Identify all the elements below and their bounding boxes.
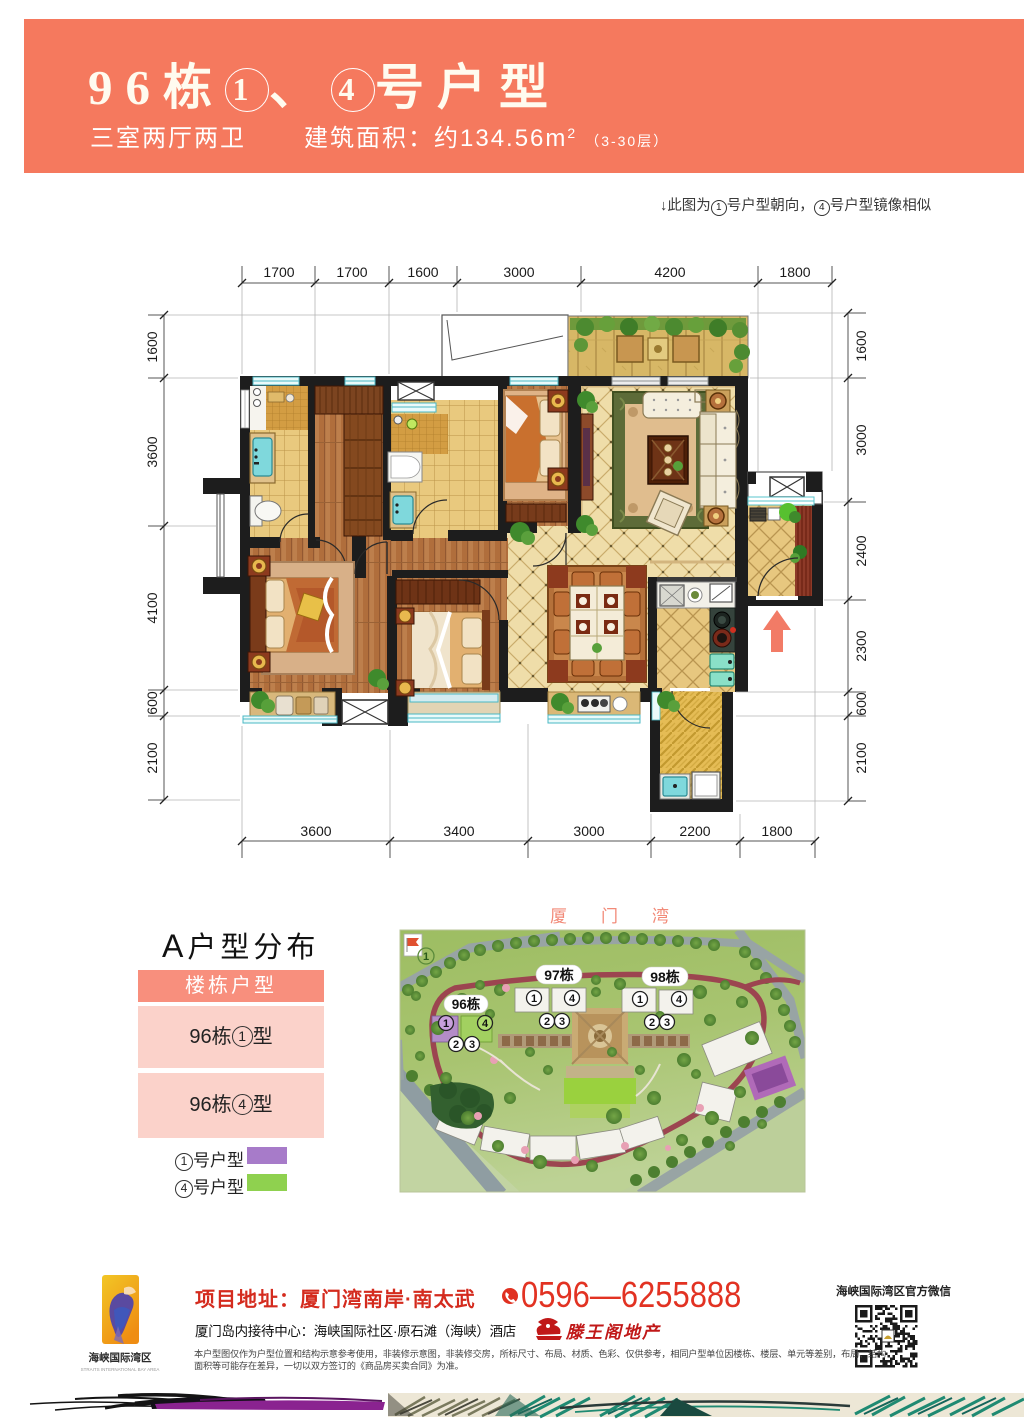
svg-text:2300: 2300 [853,630,869,661]
svg-text:3400: 3400 [443,823,474,839]
svg-text:3000: 3000 [573,823,604,839]
svg-text:1: 1 [531,993,537,1005]
svg-text:600: 600 [144,691,160,715]
svg-text:2: 2 [453,1039,459,1051]
svg-text:海峡国际湾区: 海峡国际湾区 [89,1351,152,1364]
svg-text:2100: 2100 [853,742,869,773]
svg-text:1800: 1800 [779,264,810,280]
svg-text:3: 3 [664,1017,670,1029]
svg-text:3600: 3600 [144,436,160,467]
svg-text:1: 1 [443,1018,449,1030]
svg-text:2400: 2400 [853,535,869,566]
svg-text:4100: 4100 [144,592,160,623]
svg-text:1700: 1700 [336,264,367,280]
svg-text:600: 600 [853,692,869,716]
svg-text:1600: 1600 [853,330,869,361]
svg-text:滕王阁地产: 滕王阁地产 [565,1323,661,1342]
svg-text:3000: 3000 [853,424,869,455]
svg-text:1600: 1600 [144,331,160,362]
svg-text:4200: 4200 [654,264,685,280]
svg-text:1800: 1800 [761,823,792,839]
svg-text:2: 2 [544,1016,550,1028]
svg-text:4: 4 [676,994,683,1006]
svg-text:2100: 2100 [144,742,160,773]
svg-text:1: 1 [423,951,429,963]
svg-text:1700: 1700 [263,264,294,280]
svg-text:3600: 3600 [300,823,331,839]
svg-text:1600: 1600 [407,264,438,280]
svg-text:4: 4 [482,1018,489,1030]
svg-text:4: 4 [569,993,576,1005]
svg-text:96栋: 96栋 [452,996,481,1012]
svg-text:3000: 3000 [503,264,534,280]
svg-text:3: 3 [469,1039,475,1051]
svg-text:2: 2 [649,1017,655,1029]
svg-text:3: 3 [559,1016,565,1028]
svg-text:97栋: 97栋 [544,967,574,983]
svg-text:STRAITS INTERNATIONAL BAY AREA: STRAITS INTERNATIONAL BAY AREA [81,1367,160,1372]
svg-text:厦门湾: 厦门湾 [550,907,703,926]
svg-text:2200: 2200 [679,823,710,839]
svg-text:98栋: 98栋 [650,969,680,985]
svg-text:1: 1 [637,994,643,1006]
